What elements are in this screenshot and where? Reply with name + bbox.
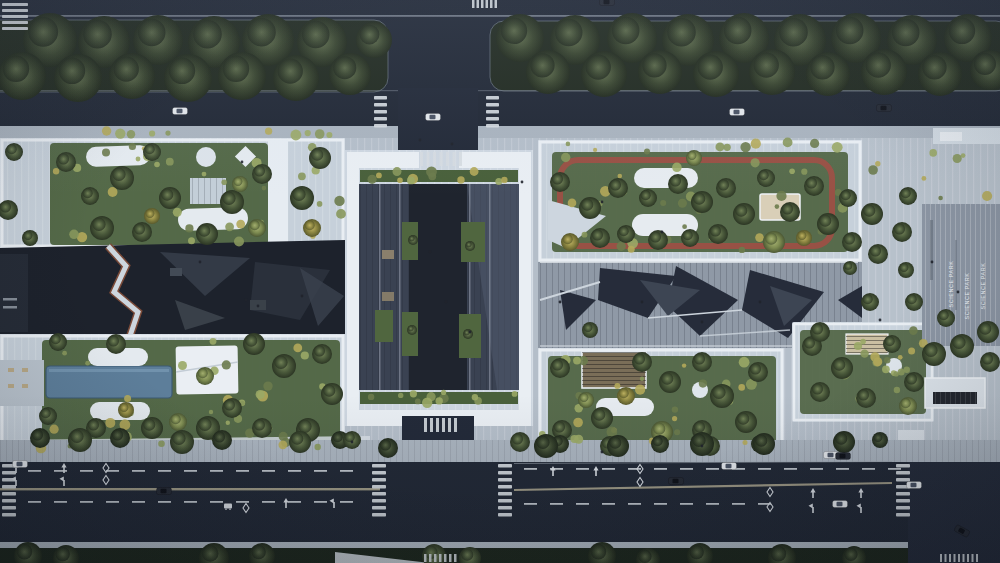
vignette (0, 0, 1000, 563)
scene-svg: SCIENCE PARK SCIENCE PARK SCIENCE PARK (0, 0, 1000, 563)
aerial-render: SCIENCE PARK SCIENCE PARK SCIENCE PARK (0, 0, 1000, 563)
